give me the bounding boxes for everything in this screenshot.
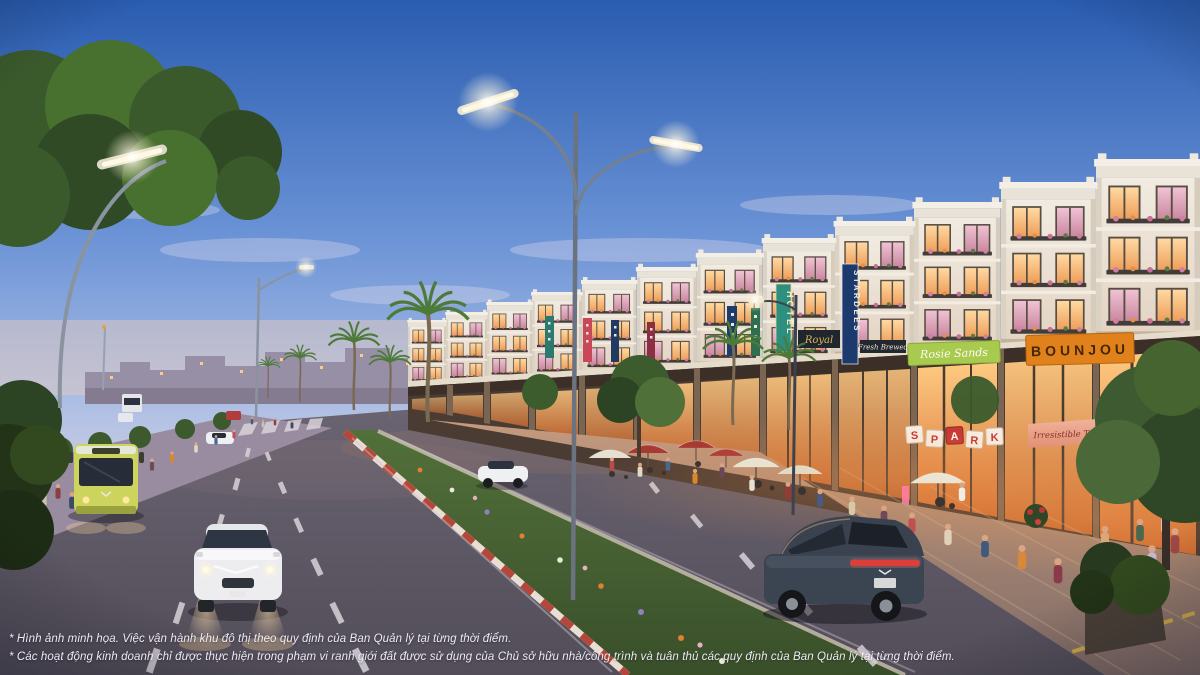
vignette <box>0 0 1200 675</box>
scene-illustration: BOUNJOU Rosie Sands Fresh Brewed STARDEE… <box>0 0 1200 675</box>
watermark-disclaimer-line2: * Các hoạt động kinh doanh chỉ được thực… <box>9 651 955 663</box>
watermark-disclaimer-line1: * Hình ảnh minh họa. Việc vận hành khu đ… <box>9 633 511 645</box>
render-scene: BOUNJOU Rosie Sands Fresh Brewed STARDEE… <box>0 0 1200 675</box>
